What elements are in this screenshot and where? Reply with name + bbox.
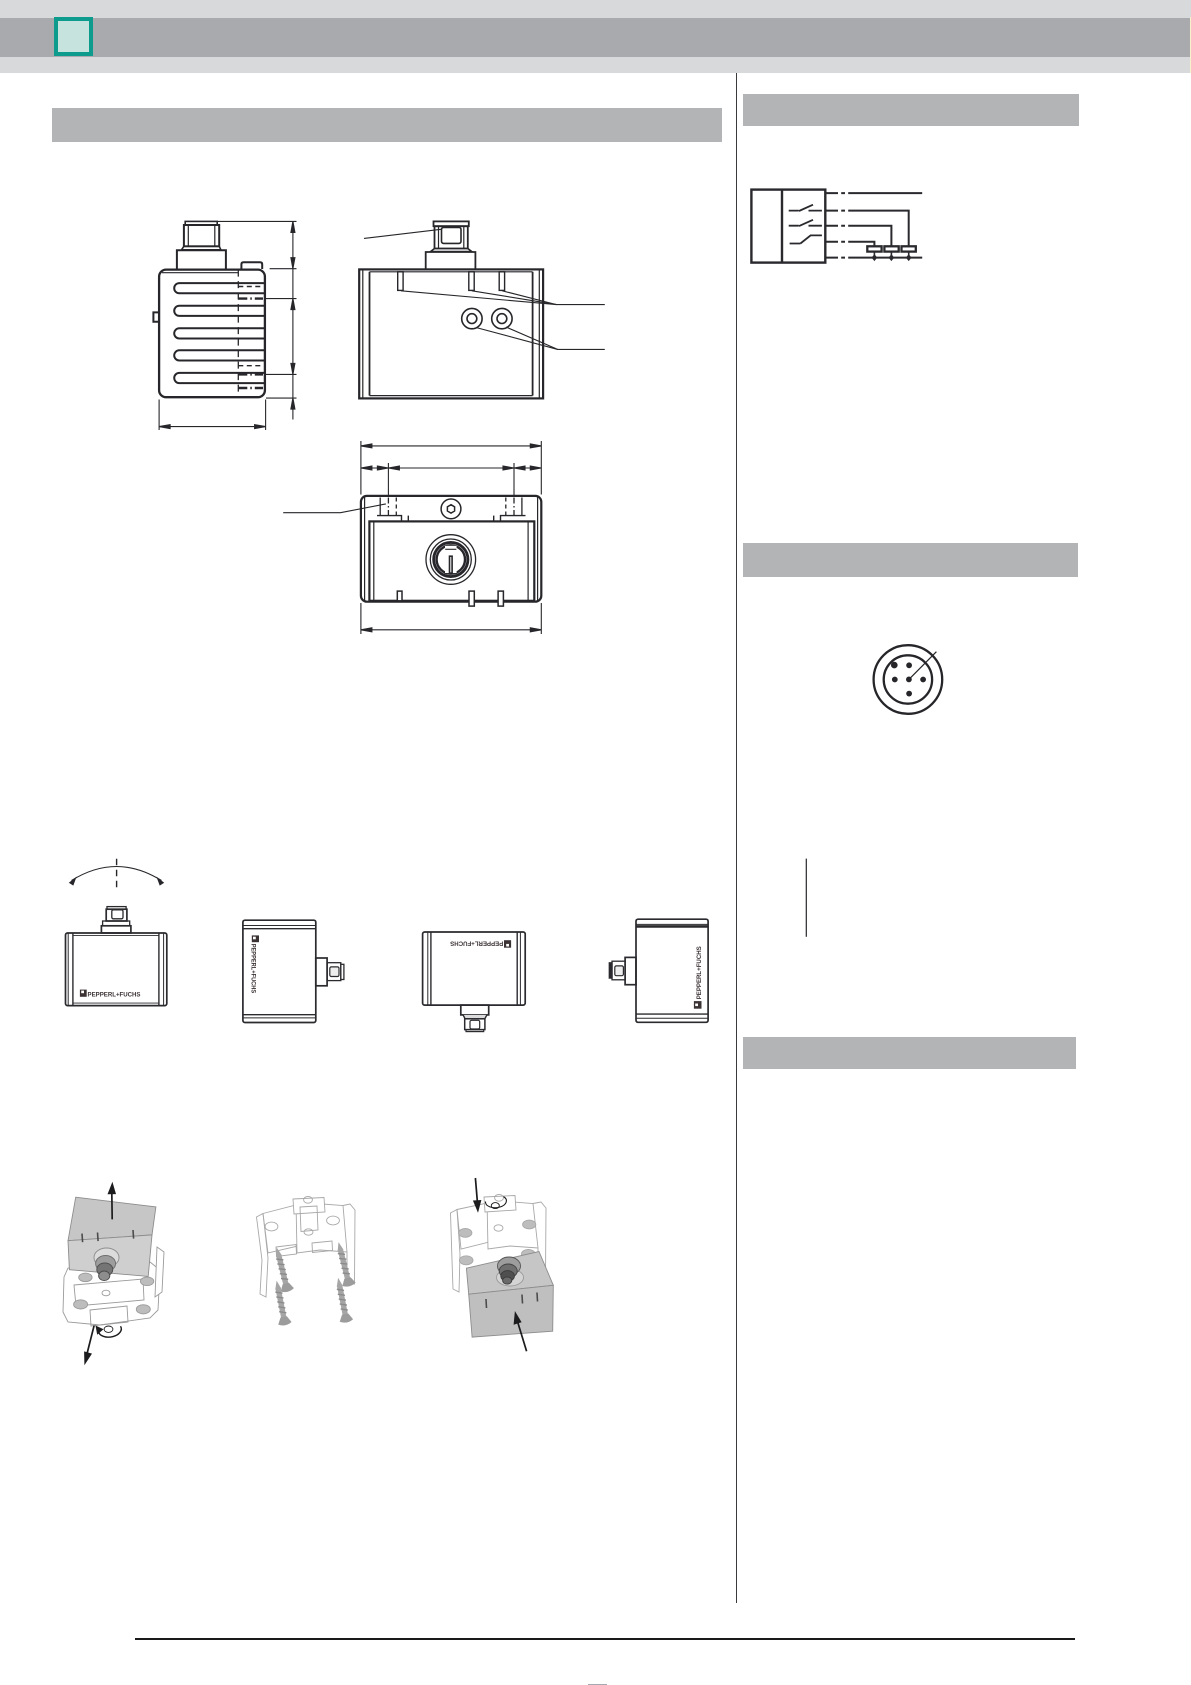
svg-text:PEPPERL+FUCHS: PEPPERL+FUCHS [696, 946, 703, 1000]
svg-text:PEPPERL+FUCHS: PEPPERL+FUCHS [250, 944, 257, 994]
svg-text:PEPPERL+FUCHS: PEPPERL+FUCHS [450, 940, 504, 947]
svg-text:PEPPERL+FUCHS: PEPPERL+FUCHS [88, 991, 142, 998]
